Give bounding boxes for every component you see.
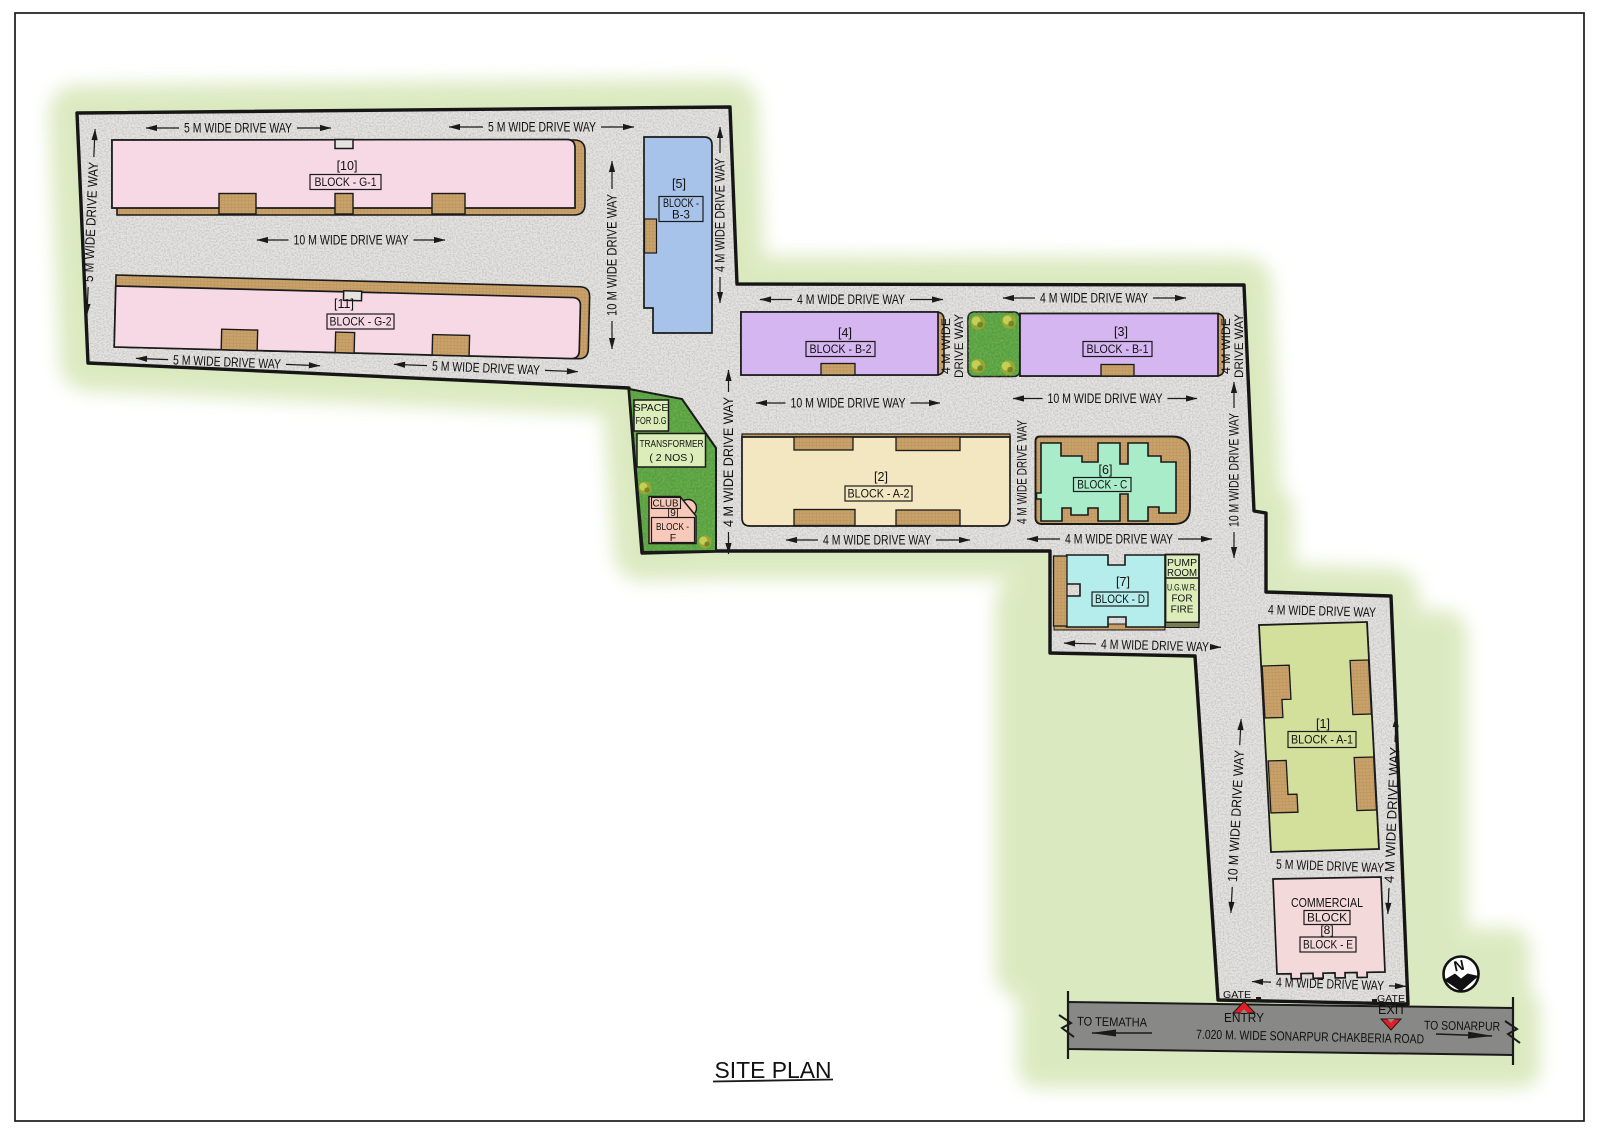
- svg-text:10 M WIDE DRIVE WAY: 10 M WIDE DRIVE WAY: [1227, 413, 1242, 527]
- svg-text:BLOCK - C: BLOCK - C: [1077, 478, 1127, 492]
- svg-text:DRIVE WAY: DRIVE WAY: [952, 314, 966, 378]
- svg-text:[11]: [11]: [334, 297, 354, 311]
- svg-text:[5]: [5]: [672, 177, 686, 191]
- svg-text:FOR D.G: FOR D.G: [636, 415, 667, 427]
- svg-text:GATE: GATE: [1223, 990, 1251, 1001]
- svg-text:10 M WIDE DRIVE WAY: 10 M WIDE DRIVE WAY: [1048, 391, 1163, 406]
- svg-text:BLOCK - E: BLOCK - E: [1303, 938, 1353, 952]
- svg-text:BLOCK - B-1: BLOCK - B-1: [1087, 342, 1149, 356]
- svg-text:BLOCK - A-1: BLOCK - A-1: [1291, 733, 1353, 747]
- svg-text:4 M WIDE DRIVE WAY: 4 M WIDE DRIVE WAY: [797, 292, 905, 307]
- svg-text:4 M WIDE DRIVE WAY: 4 M WIDE DRIVE WAY: [1015, 420, 1030, 524]
- svg-text:[8]: [8]: [1320, 923, 1333, 937]
- svg-text:FIRE: FIRE: [1171, 605, 1194, 616]
- svg-text:ROOM: ROOM: [1167, 568, 1197, 579]
- svg-text:10 M WIDE DRIVE WAY: 10 M WIDE DRIVE WAY: [605, 194, 620, 316]
- svg-text:TO SONARPUR: TO SONARPUR: [1424, 1018, 1500, 1033]
- svg-text:B-3: B-3: [672, 210, 690, 222]
- svg-text:GATE: GATE: [1377, 994, 1405, 1005]
- svg-text:[3]: [3]: [1114, 325, 1128, 339]
- svg-text:5 M WIDE DRIVE WAY: 5 M WIDE DRIVE WAY: [184, 121, 292, 136]
- svg-text:4 M WIDE DRIVE WAY: 4 M WIDE DRIVE WAY: [1065, 532, 1173, 547]
- svg-text:( 2 NOS ): ( 2 NOS ): [649, 452, 693, 464]
- svg-text:BLOCK -: BLOCK -: [663, 198, 699, 210]
- svg-text:[7]: [7]: [1116, 575, 1130, 589]
- svg-text:10 M WIDE DRIVE WAY: 10 M WIDE DRIVE WAY: [294, 233, 409, 248]
- svg-text:4 M WIDE: 4 M WIDE: [939, 318, 953, 374]
- svg-text:BLOCK - D: BLOCK - D: [1095, 592, 1145, 606]
- svg-text:4 M WIDE DRIVE WAY: 4 M WIDE DRIVE WAY: [1268, 602, 1376, 620]
- svg-text:U.G.W.R.: U.G.W.R.: [1167, 583, 1197, 594]
- svg-text:DRIVE WAY: DRIVE WAY: [1232, 314, 1246, 378]
- svg-text:[2]: [2]: [874, 470, 888, 484]
- svg-text:5 M WIDE DRIVE WAY: 5 M WIDE DRIVE WAY: [488, 120, 596, 135]
- svg-text:F: F: [670, 532, 676, 544]
- svg-text:TO TEMATHA: TO TEMATHA: [1077, 1014, 1148, 1029]
- svg-text:4 M WIDE DRIVE WAY: 4 M WIDE DRIVE WAY: [823, 533, 931, 548]
- svg-text:BLOCK - G-2: BLOCK - G-2: [330, 315, 392, 329]
- svg-text:BLOCK - G-1: BLOCK - G-1: [315, 175, 377, 189]
- svg-text:BLOCK - B-2: BLOCK - B-2: [810, 342, 872, 356]
- svg-text:4 M WIDE DRIVE WAY: 4 M WIDE DRIVE WAY: [721, 397, 736, 527]
- svg-text:4 M WIDE: 4 M WIDE: [1219, 318, 1233, 374]
- svg-text:SPACE: SPACE: [634, 402, 669, 414]
- svg-text:[10]: [10]: [337, 159, 358, 173]
- svg-text:FOR: FOR: [1171, 594, 1192, 605]
- svg-text:4 M WIDE DRIVE WAY: 4 M WIDE DRIVE WAY: [1040, 291, 1148, 306]
- svg-text:10 M WIDE DRIVE WAY: 10 M WIDE DRIVE WAY: [791, 396, 906, 411]
- svg-text:TRANSFORMER: TRANSFORMER: [640, 438, 704, 450]
- svg-text:[6]: [6]: [1099, 463, 1113, 477]
- svg-text:COMMERCIAL: COMMERCIAL: [1291, 896, 1363, 910]
- svg-text:BLOCK - A-2: BLOCK - A-2: [848, 487, 910, 501]
- svg-text:[9]: [9]: [667, 508, 678, 519]
- svg-text:[4]: [4]: [838, 326, 852, 340]
- svg-text:4 M WIDE DRIVE WAY: 4 M WIDE DRIVE WAY: [1101, 637, 1209, 655]
- svg-text:[1]: [1]: [1316, 717, 1330, 731]
- svg-text:4 M WIDE DRIVE WAY: 4 M WIDE DRIVE WAY: [713, 158, 728, 272]
